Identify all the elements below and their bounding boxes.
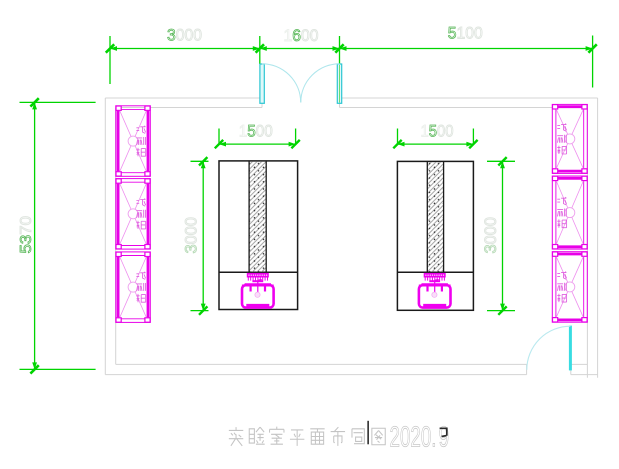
svg-text:5100: 5100 [448,23,483,42]
svg-text:3000: 3000 [167,25,202,44]
svg-text:3000: 3000 [482,217,500,254]
svg-text:1600: 1600 [284,26,319,45]
svg-text:2020.: 2020. [390,422,437,454]
svg-text:3000: 3000 [182,217,200,254]
svg-text:1500: 1500 [239,123,273,141]
svg-text:9: 9 [439,422,450,454]
svg-text:1500: 1500 [421,123,454,141]
svg-text:5370: 5370 [18,216,35,254]
